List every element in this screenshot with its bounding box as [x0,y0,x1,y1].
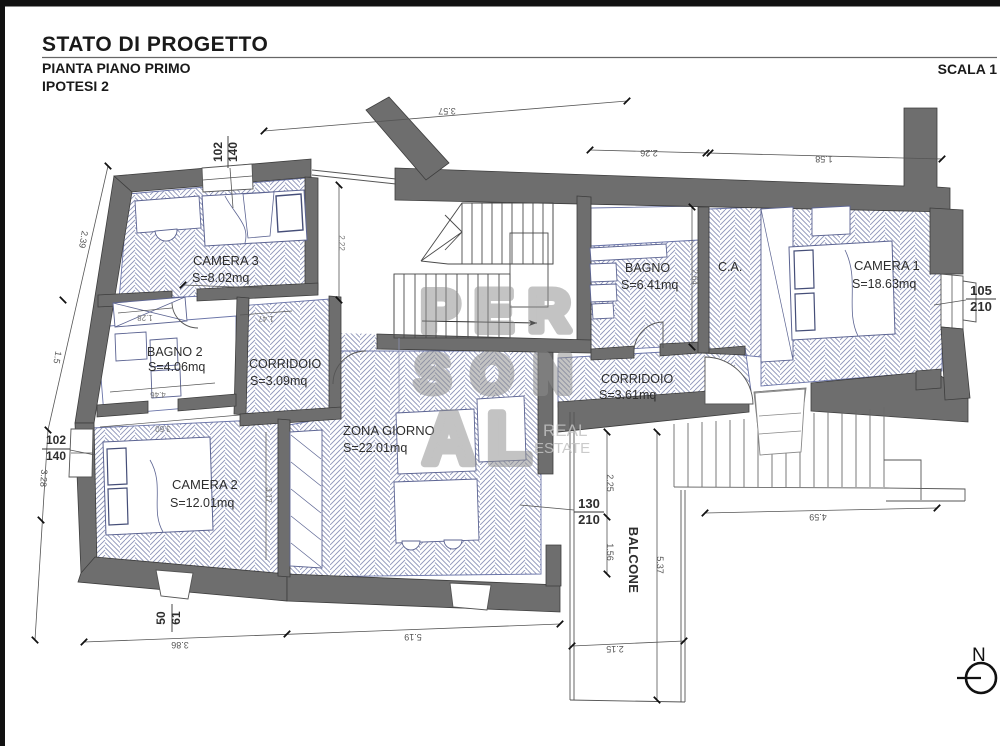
svg-text:SCALA 1: SCALA 1 [938,61,998,77]
svg-text:ESTATE: ESTATE [534,440,590,457]
svg-text:REAL: REAL [543,421,587,440]
svg-text:S=6.41mq: S=6.41mq [621,278,678,292]
svg-text:102: 102 [211,142,225,162]
svg-text:CAMERA 1: CAMERA 1 [854,258,920,273]
svg-text:4.59: 4.59 [809,512,827,522]
svg-text:S=4.06mq: S=4.06mq [148,360,205,374]
svg-text:1.58: 1.58 [815,154,833,164]
svg-text:2.25: 2.25 [605,474,615,492]
svg-text:N: N [972,645,986,666]
svg-text:1.47: 1.47 [258,314,274,323]
svg-text:5.19: 5.19 [404,632,422,642]
svg-text:210: 210 [578,512,600,527]
svg-text:61: 61 [169,611,183,625]
svg-text:S=3.61mq: S=3.61mq [599,388,656,402]
svg-text:2.15: 2.15 [606,644,624,654]
svg-text:S=3.09mq: S=3.09mq [250,374,307,388]
svg-text:210: 210 [970,299,992,314]
svg-text:S=8.02mq: S=8.02mq [192,271,249,285]
svg-text:PIANTA PIANO PRIMO: PIANTA PIANO PRIMO [42,60,191,76]
svg-text:IPOTESI 2: IPOTESI 2 [42,78,109,94]
svg-text:130: 130 [578,496,600,511]
svg-text:2.26: 2.26 [640,148,658,158]
svg-text:1.5: 1.5 [51,350,63,364]
svg-text:STATO DI PROGETTO: STATO DI PROGETTO [42,33,268,56]
svg-text:102: 102 [46,433,66,447]
svg-text:4.46: 4.46 [150,390,166,399]
svg-text:SON: SON [415,345,593,404]
svg-text:CAMERA 2: CAMERA 2 [172,477,238,492]
svg-text:2.22: 2.22 [337,235,346,251]
svg-text:5.37: 5.37 [655,556,665,574]
svg-text:CORRIDOIO: CORRIDOIO [601,372,674,386]
svg-text:BAGNO 2: BAGNO 2 [147,345,203,359]
svg-text:3.17: 3.17 [264,487,273,503]
svg-text:1.28: 1.28 [137,313,153,322]
svg-text:PER: PER [421,279,585,344]
svg-text:105: 105 [970,283,992,298]
svg-text:50: 50 [154,611,168,625]
svg-text:CORRIDOIO: CORRIDOIO [249,357,322,371]
svg-text:2.64: 2.64 [690,269,699,285]
svg-text:BALCONE: BALCONE [626,527,641,593]
svg-text:BAGNO: BAGNO [625,261,670,275]
svg-text:3.57: 3.57 [438,106,456,116]
svg-text:3.86: 3.86 [171,640,189,650]
svg-text:S=18.63mq: S=18.63mq [852,277,916,291]
svg-text:3.28: 3.28 [38,469,49,487]
svg-text:AL: AL [423,399,543,479]
svg-text:3.60: 3.60 [155,424,171,433]
svg-text:C.A.: C.A. [718,260,742,274]
svg-text:S=12.01mq: S=12.01mq [170,496,234,510]
svg-text:ZONA GIORNO: ZONA GIORNO [343,423,435,438]
svg-text:S=22.01mq: S=22.01mq [343,441,407,455]
svg-text:140: 140 [46,449,66,463]
svg-text:1.56: 1.56 [605,543,615,561]
svg-text:CAMERA 3: CAMERA 3 [193,253,259,268]
